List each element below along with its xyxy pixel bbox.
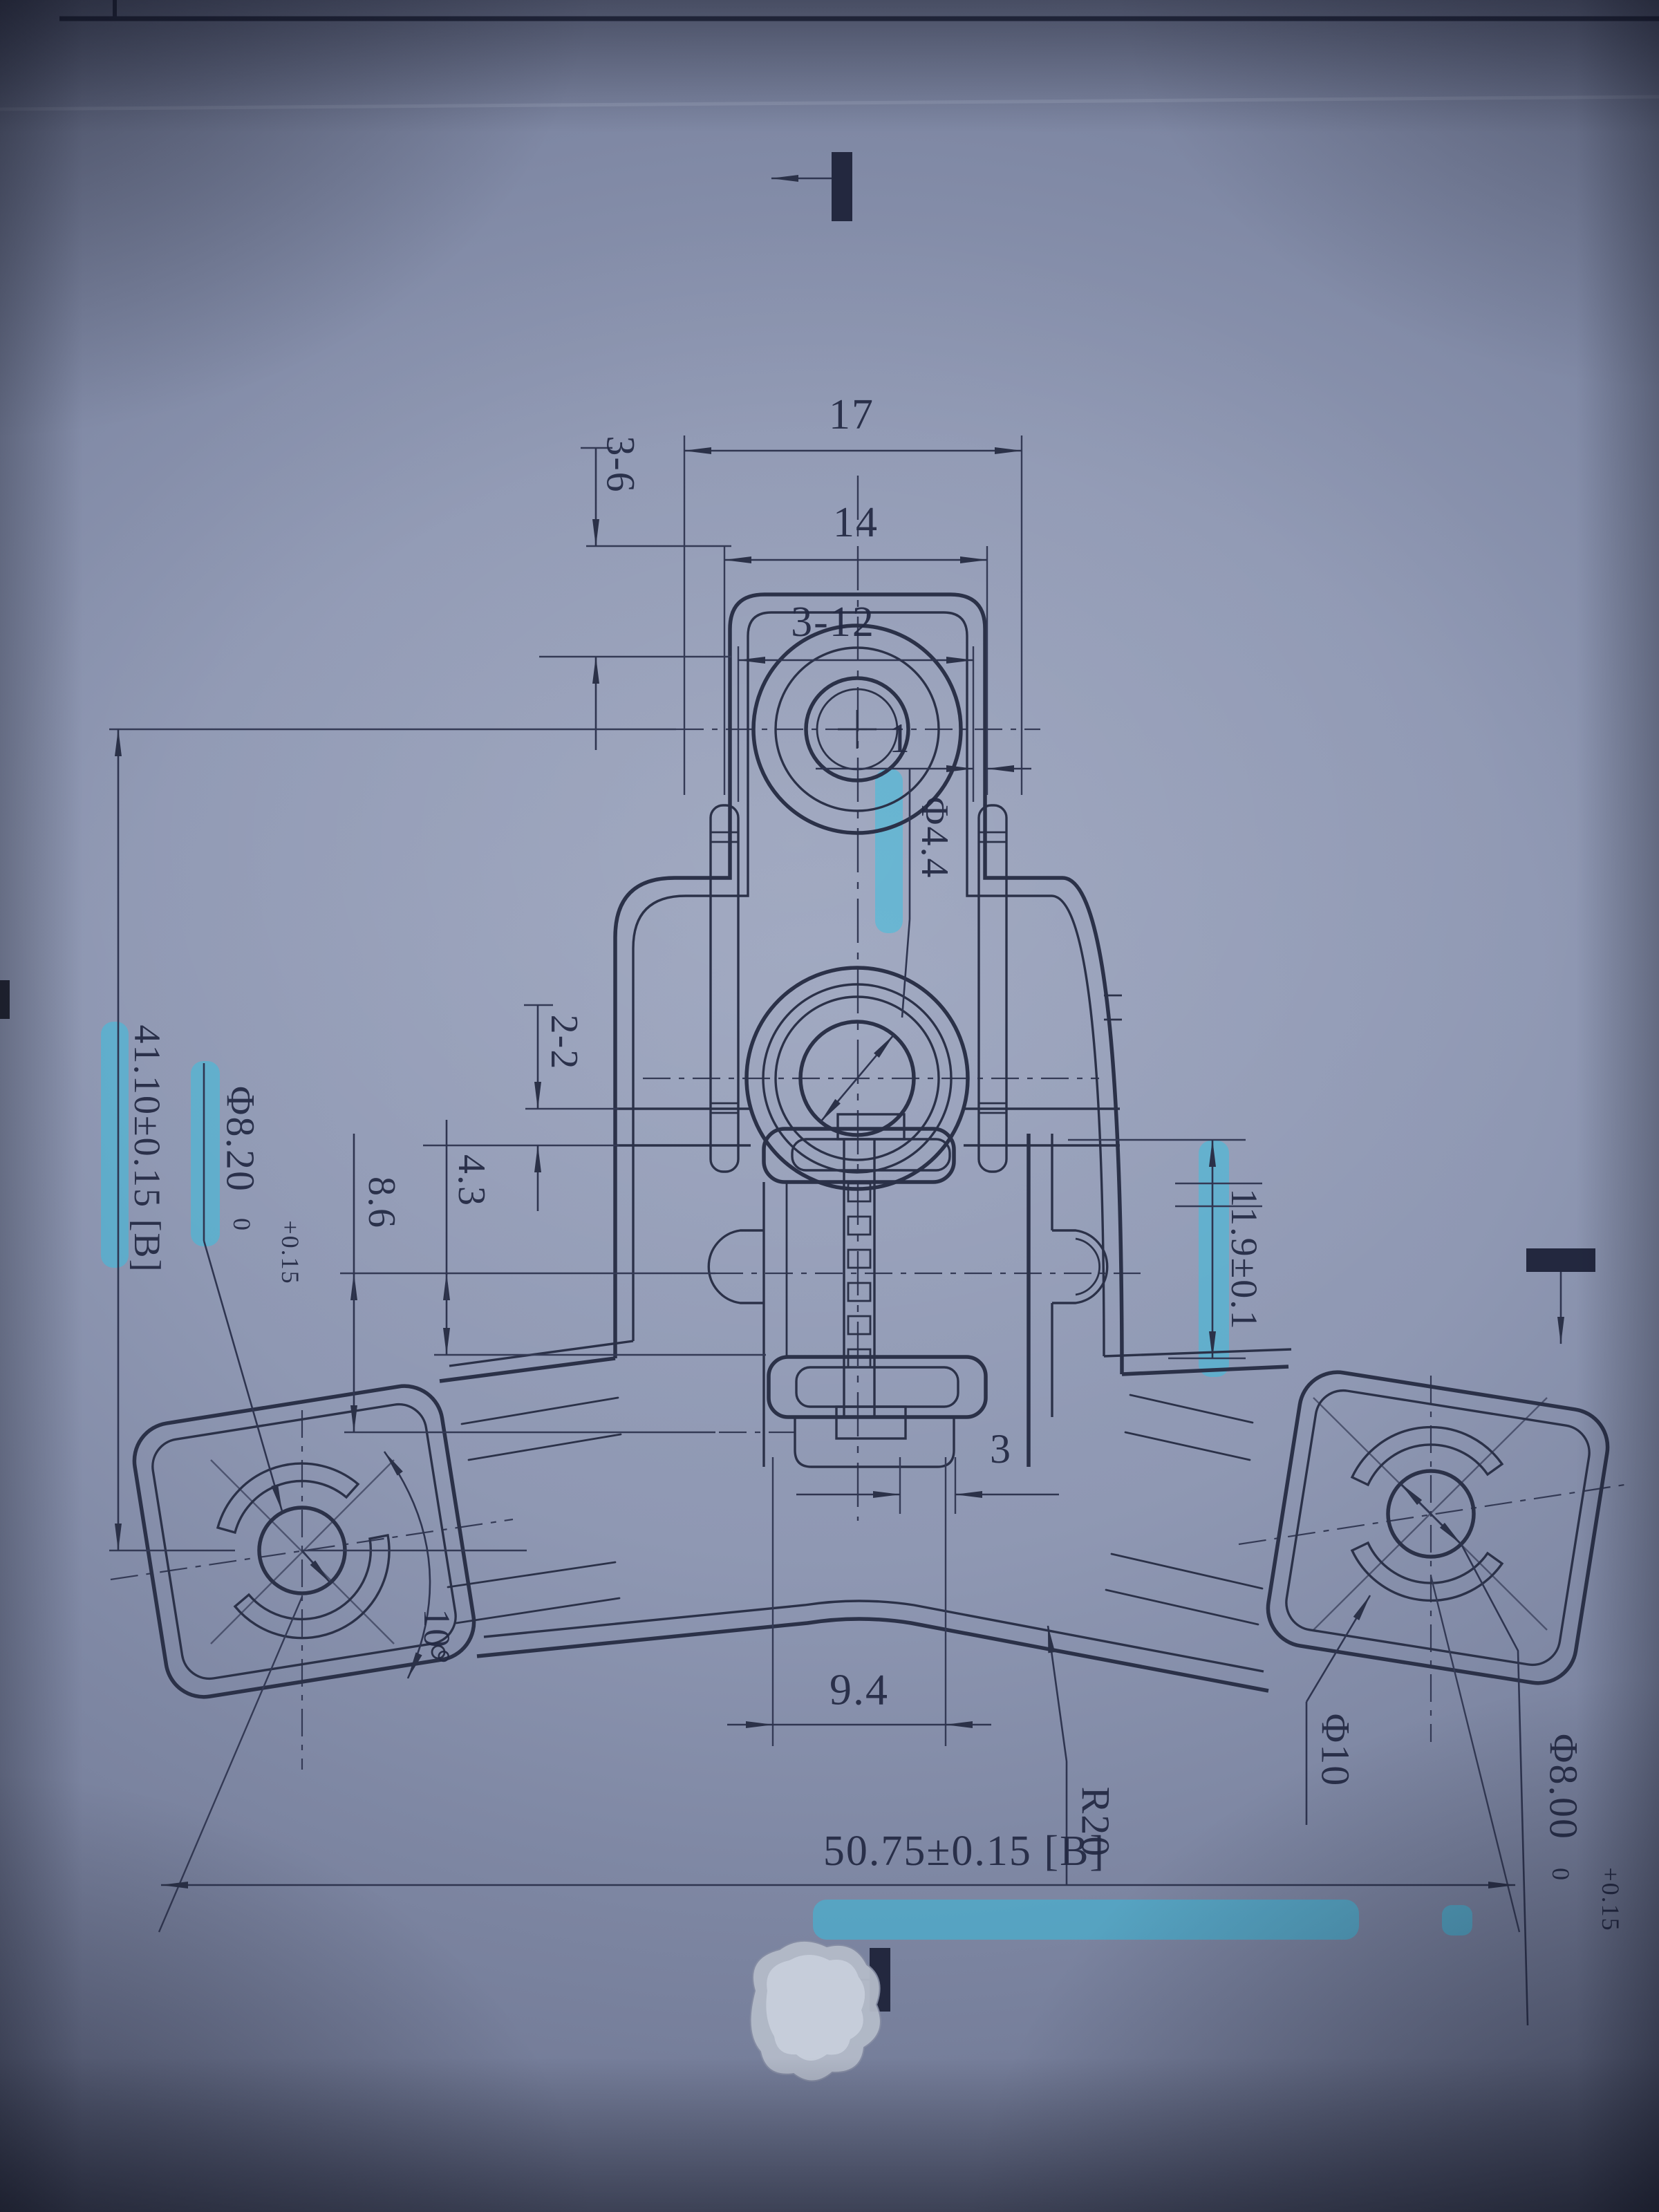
dim-phi8-20-label: Φ8.20 bbox=[218, 1086, 263, 1192]
dim-phi8-20-tol-lower: 0 bbox=[228, 1218, 256, 1232]
dim-4-3: 4.3 bbox=[340, 1120, 766, 1355]
dim-8-6-label: 8.6 bbox=[360, 1177, 403, 1229]
dim-41-10-label: 41.10±0.15 [B] bbox=[126, 1024, 168, 1273]
center-cradle bbox=[709, 1114, 1107, 1467]
dim-phi8-20: Φ8.20 +0.15 0 bbox=[204, 1063, 330, 1583]
dim-4-3-label: 4.3 bbox=[450, 1154, 493, 1207]
section-cut-markers bbox=[771, 152, 1595, 2012]
dim-2-2-label: 2-2 bbox=[543, 1015, 585, 1071]
dim-3-12: 3-12 bbox=[738, 599, 973, 802]
dim-phi8-00-tol-upper: +0.15 bbox=[1597, 1867, 1624, 1931]
dim-phi4-4-label: Φ4.4 bbox=[913, 797, 956, 879]
right-pad bbox=[1262, 1367, 1613, 1688]
dim-3-12-label: 3-12 bbox=[791, 599, 875, 646]
dim-11-9-label: 11.9±0.1 bbox=[1224, 1188, 1265, 1331]
dim-phi8-20-tol-upper: +0.15 bbox=[276, 1220, 304, 1284]
dim-angle-10-label: 10° bbox=[416, 1609, 458, 1665]
drawing-photo: 17 14 3-12 1 bbox=[0, 0, 1659, 2212]
dim-17-label: 17 bbox=[829, 391, 874, 438]
dim-phi10-label: Φ10 bbox=[1313, 1714, 1358, 1787]
dim-3-label: 3 bbox=[990, 1426, 1012, 1472]
part-outline bbox=[129, 594, 1613, 1703]
dim-1: 1 bbox=[816, 715, 1031, 769]
drawing-ink-layer: 17 14 3-12 1 bbox=[0, 0, 1659, 2212]
dim-9-4-label: 9.4 bbox=[829, 1665, 889, 1714]
dim-1-label: 1 bbox=[889, 715, 911, 761]
dimensions: 17 14 3-12 1 bbox=[109, 391, 1624, 2025]
dim-angle-10: 10° bbox=[302, 1452, 527, 1678]
dim-14-label: 14 bbox=[833, 499, 879, 546]
paper-tear bbox=[751, 1941, 881, 2081]
sheet-frame bbox=[0, 0, 1659, 1019]
dim-11-9: 11.9±0.1 bbox=[1068, 1140, 1265, 1358]
dim-50-75-label: 50.75±0.15 [B] bbox=[823, 1828, 1105, 1875]
dim-phi8-00-label: Φ8.00 bbox=[1541, 1734, 1586, 1840]
dim-3-6: 3-6 bbox=[539, 435, 731, 750]
dim-3-6-label: 3-6 bbox=[599, 435, 644, 493]
dim-phi8-00-tol-lower: 0 bbox=[1547, 1868, 1575, 1882]
arms bbox=[440, 1341, 1291, 1691]
